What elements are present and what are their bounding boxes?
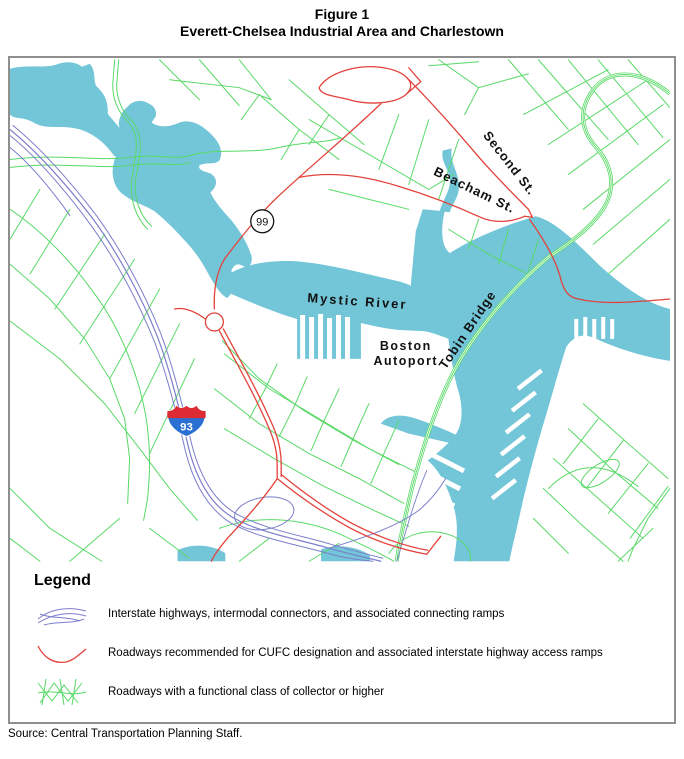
figure-number: Figure 1: [0, 6, 684, 23]
legend-heading: Legend: [34, 572, 670, 590]
legend-item-cufc: Roadways recommended for CUFC designatio…: [34, 638, 670, 668]
map-frame: Second St. Beacham St. Mystic River Bost…: [8, 56, 676, 724]
legend: Legend Interstate highways, intermodal c…: [10, 564, 670, 707]
collector-line-symbol-icon: [34, 677, 90, 707]
figure-page: { "title": { "line1": "Figure 1", "line2…: [0, 0, 684, 759]
legend-item-label: Roadways recommended for CUFC designatio…: [108, 647, 603, 659]
map-graphic: Second St. Beacham St. Mystic River Bost…: [10, 58, 670, 564]
svg-text:99: 99: [256, 217, 268, 229]
label-boston: Boston: [380, 339, 432, 353]
legend-item-interstate: Interstate highways, intermodal connecto…: [34, 599, 670, 629]
route-99-shield-icon: 99: [251, 210, 274, 233]
interstate-line-symbol-icon: [34, 599, 90, 629]
label-autoport: Autoport: [374, 354, 439, 368]
svg-text:93: 93: [180, 422, 193, 434]
cufc-line-symbol-icon: [34, 638, 90, 668]
figure-title: Figure 1 Everett-Chelsea Industrial Area…: [0, 6, 684, 40]
legend-item-collector: Roadways with a functional class of coll…: [34, 677, 670, 707]
legend-item-label: Interstate highways, intermodal connecto…: [108, 608, 504, 620]
legend-item-label: Roadways with a functional class of coll…: [108, 686, 384, 698]
source-note: Source: Central Transportation Planning …: [8, 728, 242, 740]
figure-caption: Everett-Chelsea Industrial Area and Char…: [0, 23, 684, 40]
i-93-shield-icon: 93: [167, 406, 205, 437]
